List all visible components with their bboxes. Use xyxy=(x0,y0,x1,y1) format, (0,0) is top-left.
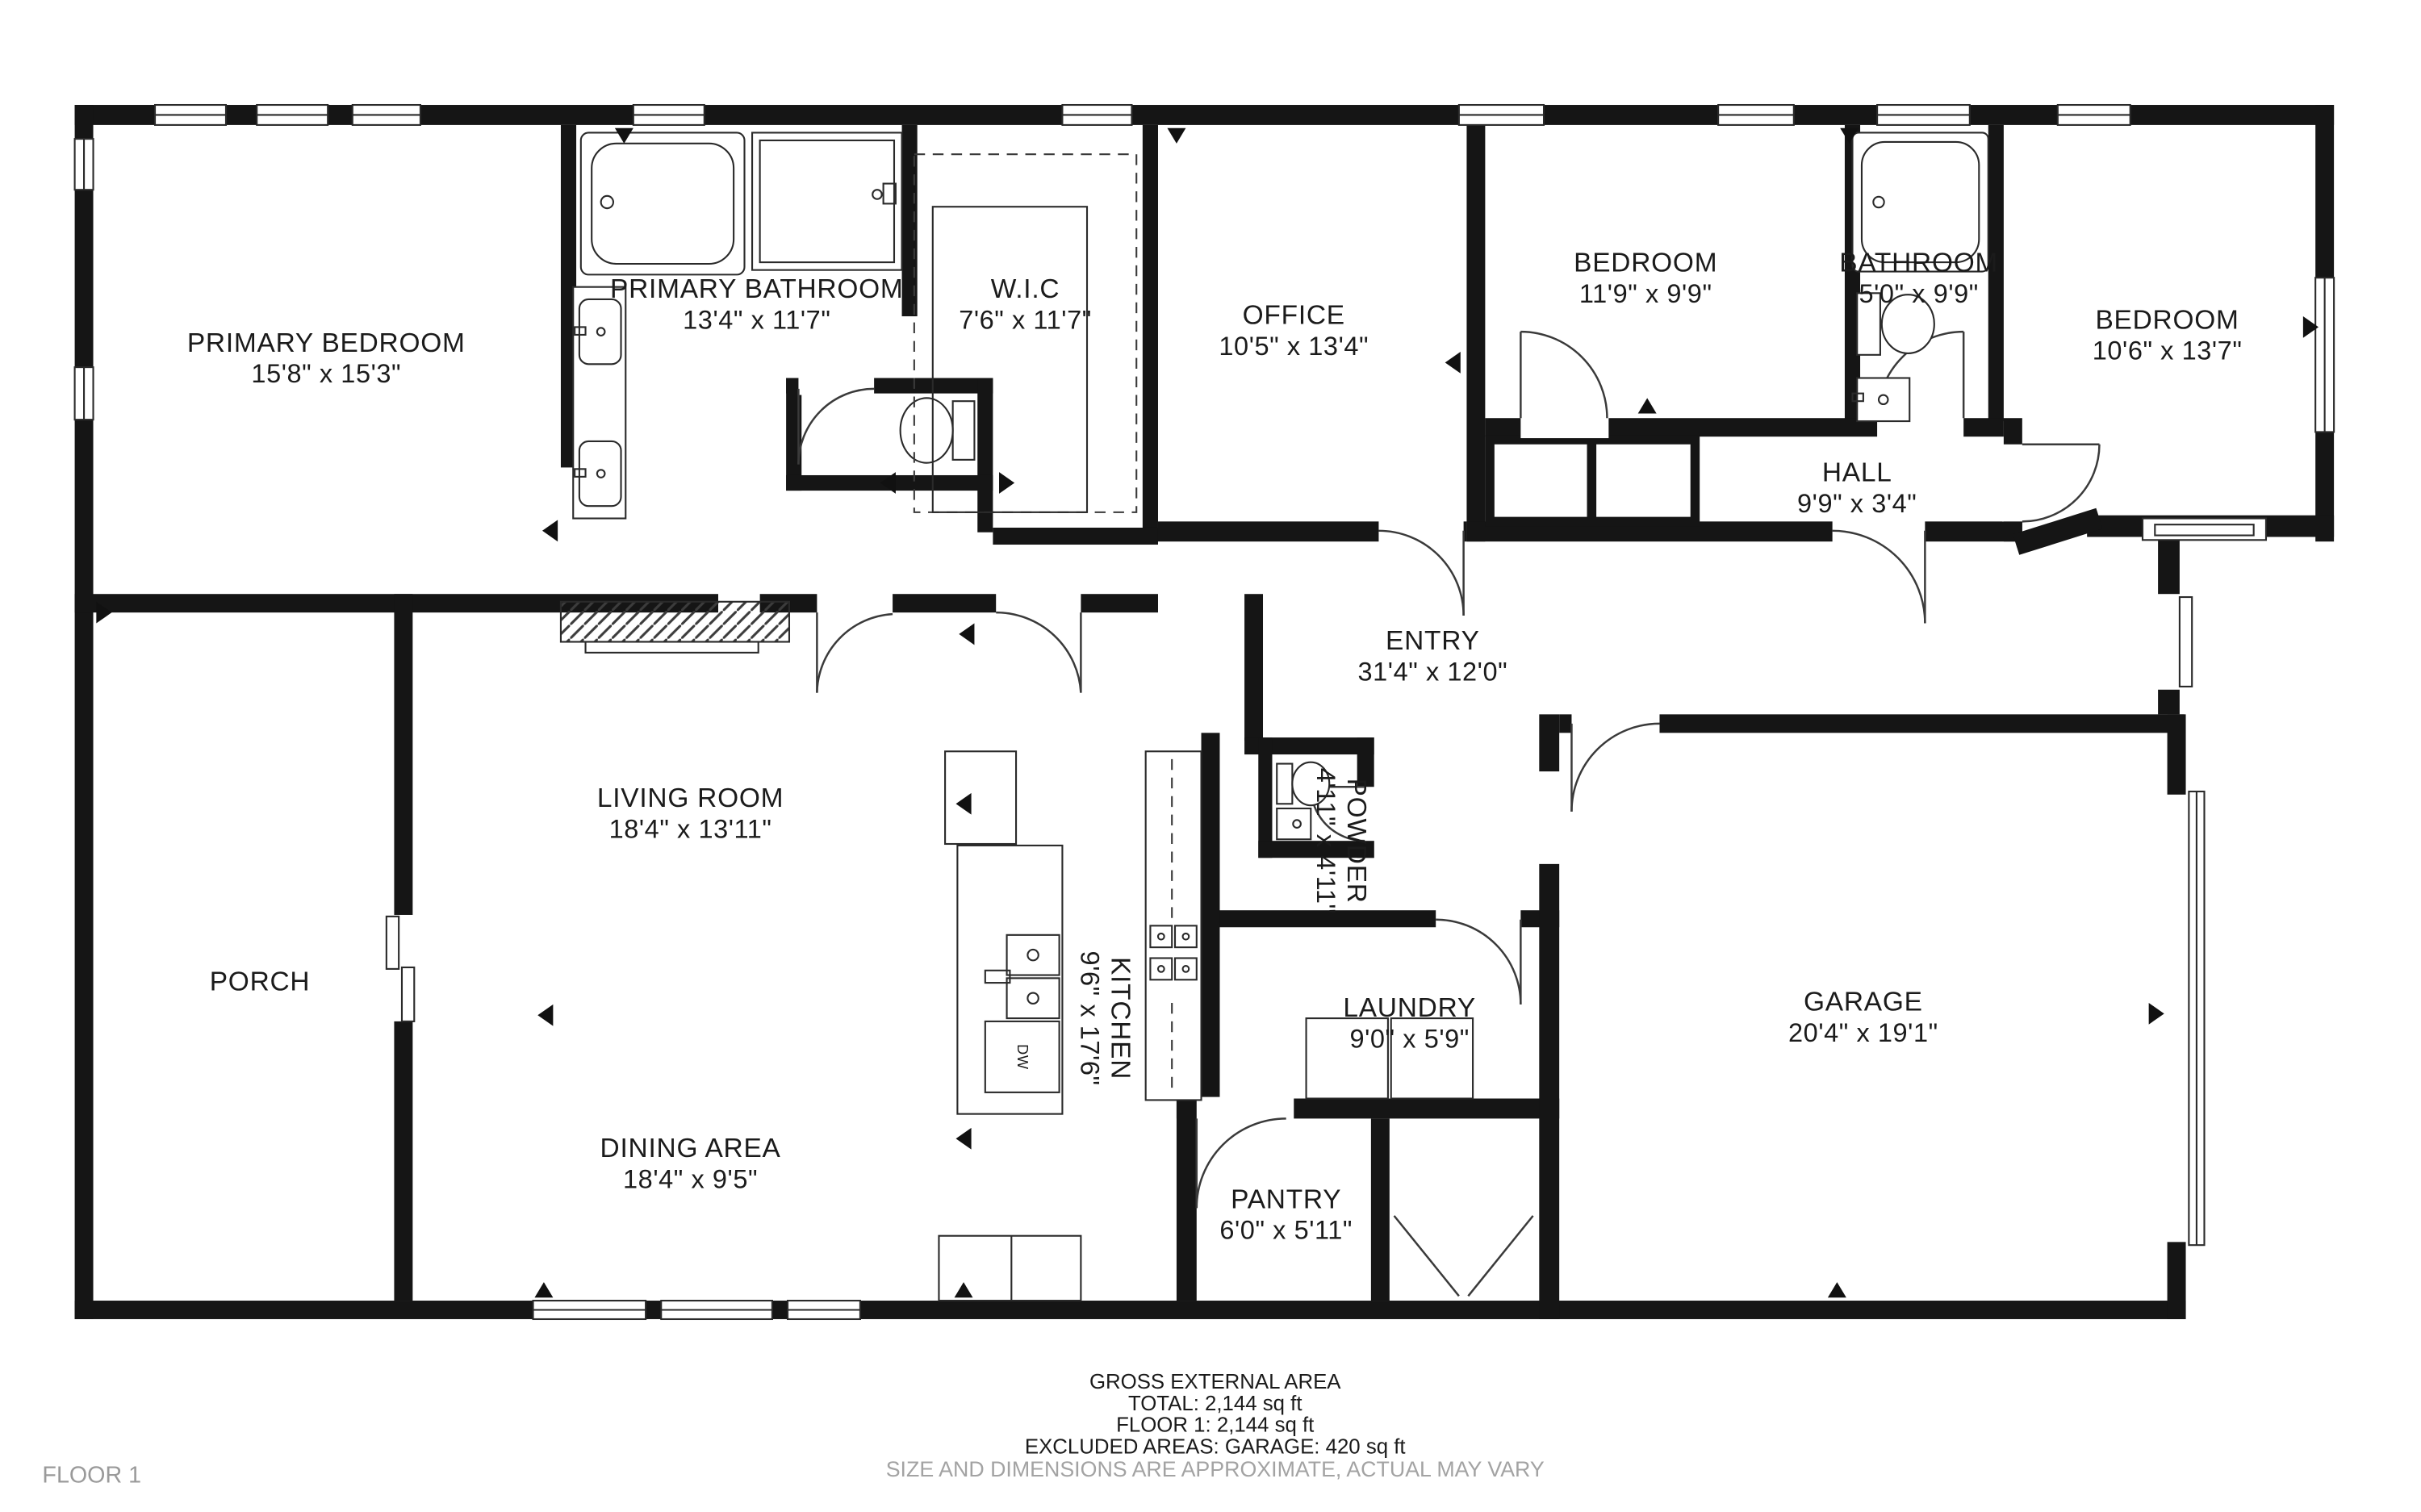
room-dims: 11'9" x 9'9" xyxy=(1579,279,1712,308)
walls xyxy=(75,105,2335,1319)
window xyxy=(155,105,226,125)
room-label: BEDROOM xyxy=(2095,305,2239,335)
room-bathroom: BATHROOM 5'0" x 9'9" xyxy=(1839,249,1998,308)
window xyxy=(533,1301,646,1319)
room-dims: 20'4" x 19'1" xyxy=(1788,1018,1938,1047)
room-bedroom-1: BEDROOM 11'9" x 9'9" xyxy=(1574,249,1717,308)
room-dims: 5'0" x 9'9" xyxy=(1859,279,1979,308)
room-dims: 10'6" x 13'7" xyxy=(2093,336,2243,365)
room-label: PRIMARY BEDROOM xyxy=(187,328,466,358)
room-label: PORCH xyxy=(210,967,311,997)
room-dims: 4'11" x 4'11" xyxy=(1311,768,1340,914)
footer-disclaimer: SIZE AND DIMENSIONS ARE APPROXIMATE, ACT… xyxy=(886,1457,1545,1481)
room-label: POWDER xyxy=(1341,779,1371,904)
room-label: BEDROOM xyxy=(1574,249,1717,278)
room-label: PANTRY xyxy=(1231,1184,1341,1214)
door-arc xyxy=(1833,531,1926,624)
room-powder: POWDER 4'11" x 4'11" xyxy=(1311,768,1371,914)
footer-excluded: EXCLUDED AREAS: GARAGE: 420 sq ft xyxy=(1025,1435,1406,1458)
door-arc xyxy=(996,612,1081,692)
room-pantry: PANTRY 6'0" x 5'11" xyxy=(1219,1184,1353,1244)
footer: GROSS EXTERNAL AREA TOTAL: 2,144 sq ft F… xyxy=(886,1371,1545,1481)
room-dims: 13'4" x 11'7" xyxy=(683,305,830,334)
door-arc xyxy=(1571,724,1659,812)
room-dining-area: DINING AREA 18'4" x 9'5" xyxy=(600,1134,781,1193)
room-wic: W.I.C 7'6" x 11'7" xyxy=(959,274,1092,334)
window xyxy=(1459,105,1544,125)
floor-label: FLOOR 1 xyxy=(42,1463,141,1489)
window xyxy=(75,139,94,190)
room-label: PRIMARY BATHROOM xyxy=(610,274,904,304)
dimension-arrows xyxy=(96,128,2319,1297)
front-door xyxy=(2180,597,2192,687)
window xyxy=(353,105,420,125)
shower xyxy=(752,132,901,269)
window xyxy=(2315,278,2334,432)
window xyxy=(75,367,94,420)
floor-plan-svg: PRIMARY BEDROOM 15'8" x 15'3" PRIMARY BA… xyxy=(0,0,2421,1512)
toilet xyxy=(901,398,975,462)
window-seat xyxy=(2143,519,2266,541)
bifold-closet-doors xyxy=(1394,1216,1533,1296)
sink-2 xyxy=(1852,378,1909,422)
window xyxy=(1718,105,1794,125)
footer-area-title: GROSS EXTERNAL AREA xyxy=(1089,1371,1341,1393)
door-arc xyxy=(1436,920,1520,1005)
window xyxy=(1062,105,1131,125)
window xyxy=(788,1301,860,1319)
vanity-sinks xyxy=(573,287,625,519)
room-label: OFFICE xyxy=(1243,301,1345,331)
door-arc xyxy=(1378,531,1463,616)
room-label: W.I.C xyxy=(991,274,1060,304)
room-dims: 10'5" x 13'4" xyxy=(1219,332,1369,361)
room-dims: 6'0" x 5'11" xyxy=(1219,1216,1353,1245)
room-label: DINING AREA xyxy=(600,1134,781,1163)
room-garage: GARAGE 20'4" x 19'1" xyxy=(1788,988,1938,1047)
garage-door xyxy=(2189,792,2204,1245)
window xyxy=(257,105,328,125)
bathtub xyxy=(581,132,745,274)
kitchen-island xyxy=(957,846,1062,1114)
room-label: HALL xyxy=(1822,458,1892,488)
room-label: KITCHEN xyxy=(1106,957,1135,1080)
footer-total: TOTAL: 2,144 sq ft xyxy=(1128,1393,1302,1415)
room-dims: 15'8" x 15'3" xyxy=(251,359,401,388)
room-label: BATHROOM xyxy=(1839,249,1998,278)
window xyxy=(633,105,705,125)
room-primary-bathroom: PRIMARY BATHROOM 13'4" x 11'7" xyxy=(610,274,904,334)
room-kitchen: KITCHEN 9'6" x 17'6" xyxy=(1075,951,1135,1086)
room-bedroom-2: BEDROOM 10'6" x 13'7" xyxy=(2093,305,2243,365)
room-dims: 18'4" x 9'5" xyxy=(623,1164,758,1193)
room-hall: HALL 9'9" x 3'4" xyxy=(1797,458,1917,518)
window xyxy=(2058,105,2130,125)
room-label: LAUNDRY xyxy=(1343,993,1476,1023)
dishwasher-label: DW xyxy=(1014,1044,1031,1070)
door-arc xyxy=(1520,332,1607,418)
floor-plan-page: PRIMARY BEDROOM 15'8" x 15'3" PRIMARY BA… xyxy=(0,0,2421,1512)
door-arc xyxy=(2022,445,2100,522)
room-dims: 7'6" x 11'7" xyxy=(959,305,1092,334)
room-label: ENTRY xyxy=(1386,626,1480,656)
room-entry: ENTRY 31'4" x 12'0" xyxy=(1358,626,1508,686)
door-arc xyxy=(817,612,893,692)
room-primary-bedroom: PRIMARY BEDROOM 15'8" x 15'3" xyxy=(187,328,466,388)
room-dims: 9'9" x 3'4" xyxy=(1797,489,1917,518)
footer-floor-total: FLOOR 1: 2,144 sq ft xyxy=(1116,1414,1314,1437)
room-dims: 31'4" x 12'0" xyxy=(1358,657,1508,686)
room-office: OFFICE 10'5" x 13'4" xyxy=(1219,301,1369,361)
fireplace xyxy=(561,602,789,653)
room-dims: 18'4" x 13'11" xyxy=(609,814,772,843)
fridge xyxy=(945,751,1016,844)
room-dims: 9'6" x 17'6" xyxy=(1075,951,1104,1086)
door-arc xyxy=(798,389,874,465)
room-living-room: LIVING ROOM 18'4" x 13'11" xyxy=(597,783,784,843)
room-porch: PORCH xyxy=(210,967,311,997)
window xyxy=(661,1301,772,1319)
room-label: GARAGE xyxy=(1804,988,1923,1017)
room-label: LIVING ROOM xyxy=(597,783,784,813)
window xyxy=(1877,105,1970,125)
room-dims: 9'0" x 5'9" xyxy=(1349,1024,1469,1053)
